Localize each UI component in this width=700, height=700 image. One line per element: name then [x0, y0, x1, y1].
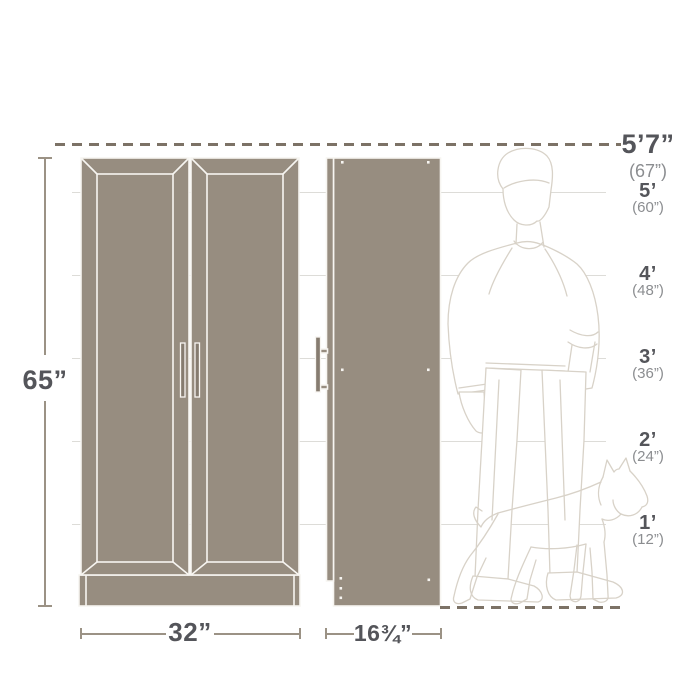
marker-3ft-inches: (36”): [600, 365, 696, 382]
person-silhouette: [448, 148, 622, 602]
side-view-handle: [316, 337, 321, 392]
marker-1ft-inches: (12”): [600, 531, 696, 548]
dimension-diagram: 65” 32” 16¾” 5’7” (67”) 5’ (60”) 4’ (48”…: [0, 0, 700, 700]
ceiling-dash-line: [55, 143, 621, 146]
height-dimension-label: 65”: [5, 366, 85, 394]
height-dim-line: [44, 159, 46, 355]
width-dimension-label: 32”: [150, 619, 230, 646]
person-height-inches-label: (67”): [600, 162, 696, 181]
right-door-handle: [195, 343, 200, 397]
side-door-edge: [327, 158, 334, 581]
cabinet-side-view: [312, 153, 446, 610]
depth-dimension-label: 16¾”: [343, 621, 423, 645]
marker-5ft-inches: (60”): [600, 199, 696, 216]
floor-dash-line: [440, 606, 621, 609]
person-height-label: 5’7”: [600, 130, 696, 158]
left-door-handle: [181, 343, 186, 397]
side-panel: [334, 158, 441, 606]
height-dim-line: [44, 401, 46, 605]
height-dim-cap-bottom: [38, 605, 52, 607]
width-dim-cap-right: [299, 628, 301, 639]
depth-dim-cap-right: [440, 628, 442, 639]
cabinet-front-view: [77, 153, 303, 610]
marker-2ft-inches: (24”): [600, 448, 696, 465]
marker-4ft-inches: (48”): [600, 282, 696, 299]
